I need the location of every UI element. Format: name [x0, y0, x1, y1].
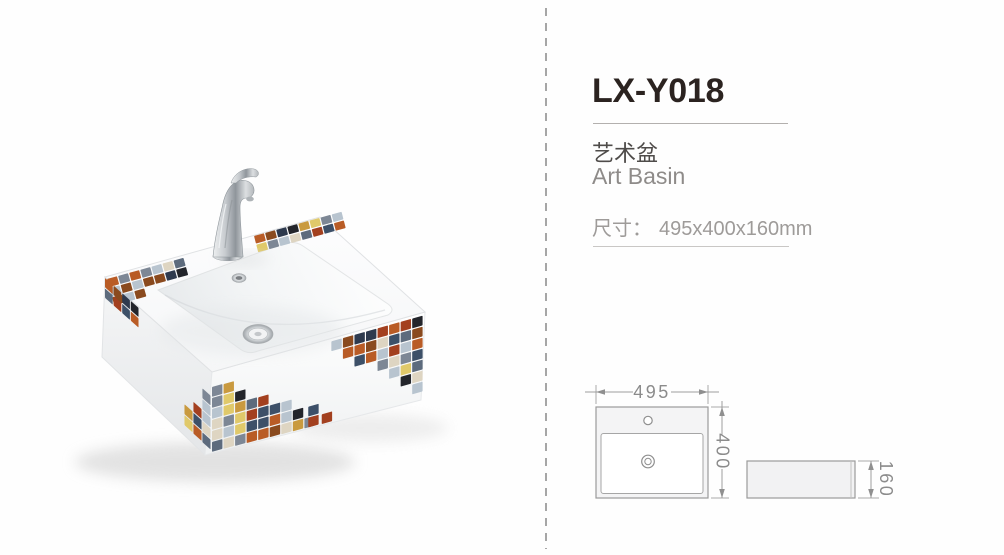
divider-line-top [593, 123, 788, 124]
faucet-hole-symbol [644, 416, 652, 424]
product-name-en: Art Basin [592, 163, 685, 190]
product-model: LX-Y018 [592, 72, 724, 111]
technical-drawing: 495 400 160 [570, 365, 910, 535]
drain-symbol [642, 455, 655, 468]
catalog-page: { "page": {"background": "#fefefe", "div… [0, 0, 1004, 555]
divider-line-bottom [593, 246, 789, 247]
size-label: 尺寸： [592, 218, 652, 240]
side-view-drawing [747, 461, 879, 498]
dimension-label-width: 495 [633, 382, 671, 402]
product-info-panel: LX-Y018 艺术盆 Art Basin 尺寸：495x400x160mm [0, 0, 1004, 555]
dimension-label-depth: 400 [713, 433, 733, 471]
size-row: 尺寸：495x400x160mm [592, 212, 812, 241]
dimension-label-height: 160 [876, 461, 896, 499]
size-value: 495x400x160mm [659, 218, 812, 240]
